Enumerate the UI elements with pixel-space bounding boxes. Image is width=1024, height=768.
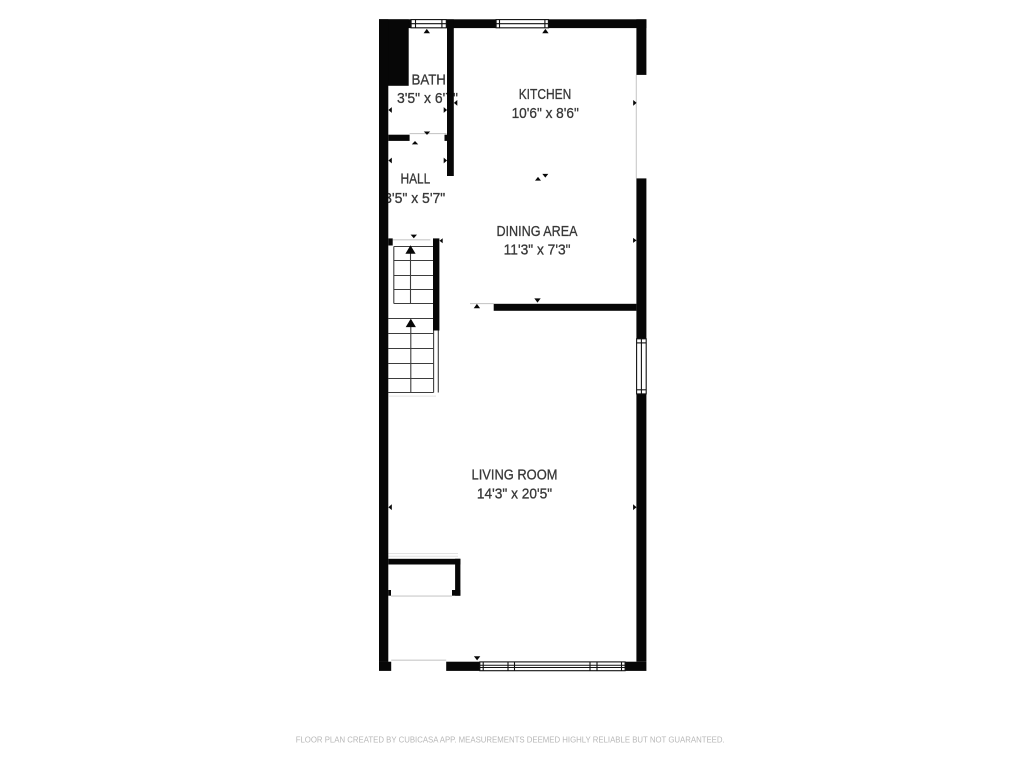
svg-text:DINING AREA: DINING AREA — [496, 223, 577, 240]
svg-text:14'3" x 20'5": 14'3" x 20'5" — [477, 485, 552, 502]
svg-text:FLOOR PLAN CREATED BY CUBICASA: FLOOR PLAN CREATED BY CUBICASA APP. MEAS… — [296, 735, 725, 744]
svg-text:HALL: HALL — [400, 171, 430, 188]
svg-text:3'5" x 5'7": 3'5" x 5'7" — [384, 190, 445, 207]
svg-text:KITCHEN: KITCHEN — [519, 86, 572, 103]
svg-text:BATH: BATH — [412, 71, 446, 88]
svg-text:11'3" x 7'3": 11'3" x 7'3" — [504, 242, 571, 259]
svg-text:10'6" x 8'6": 10'6" x 8'6" — [512, 105, 579, 122]
svg-text:LIVING ROOM: LIVING ROOM — [472, 467, 558, 484]
